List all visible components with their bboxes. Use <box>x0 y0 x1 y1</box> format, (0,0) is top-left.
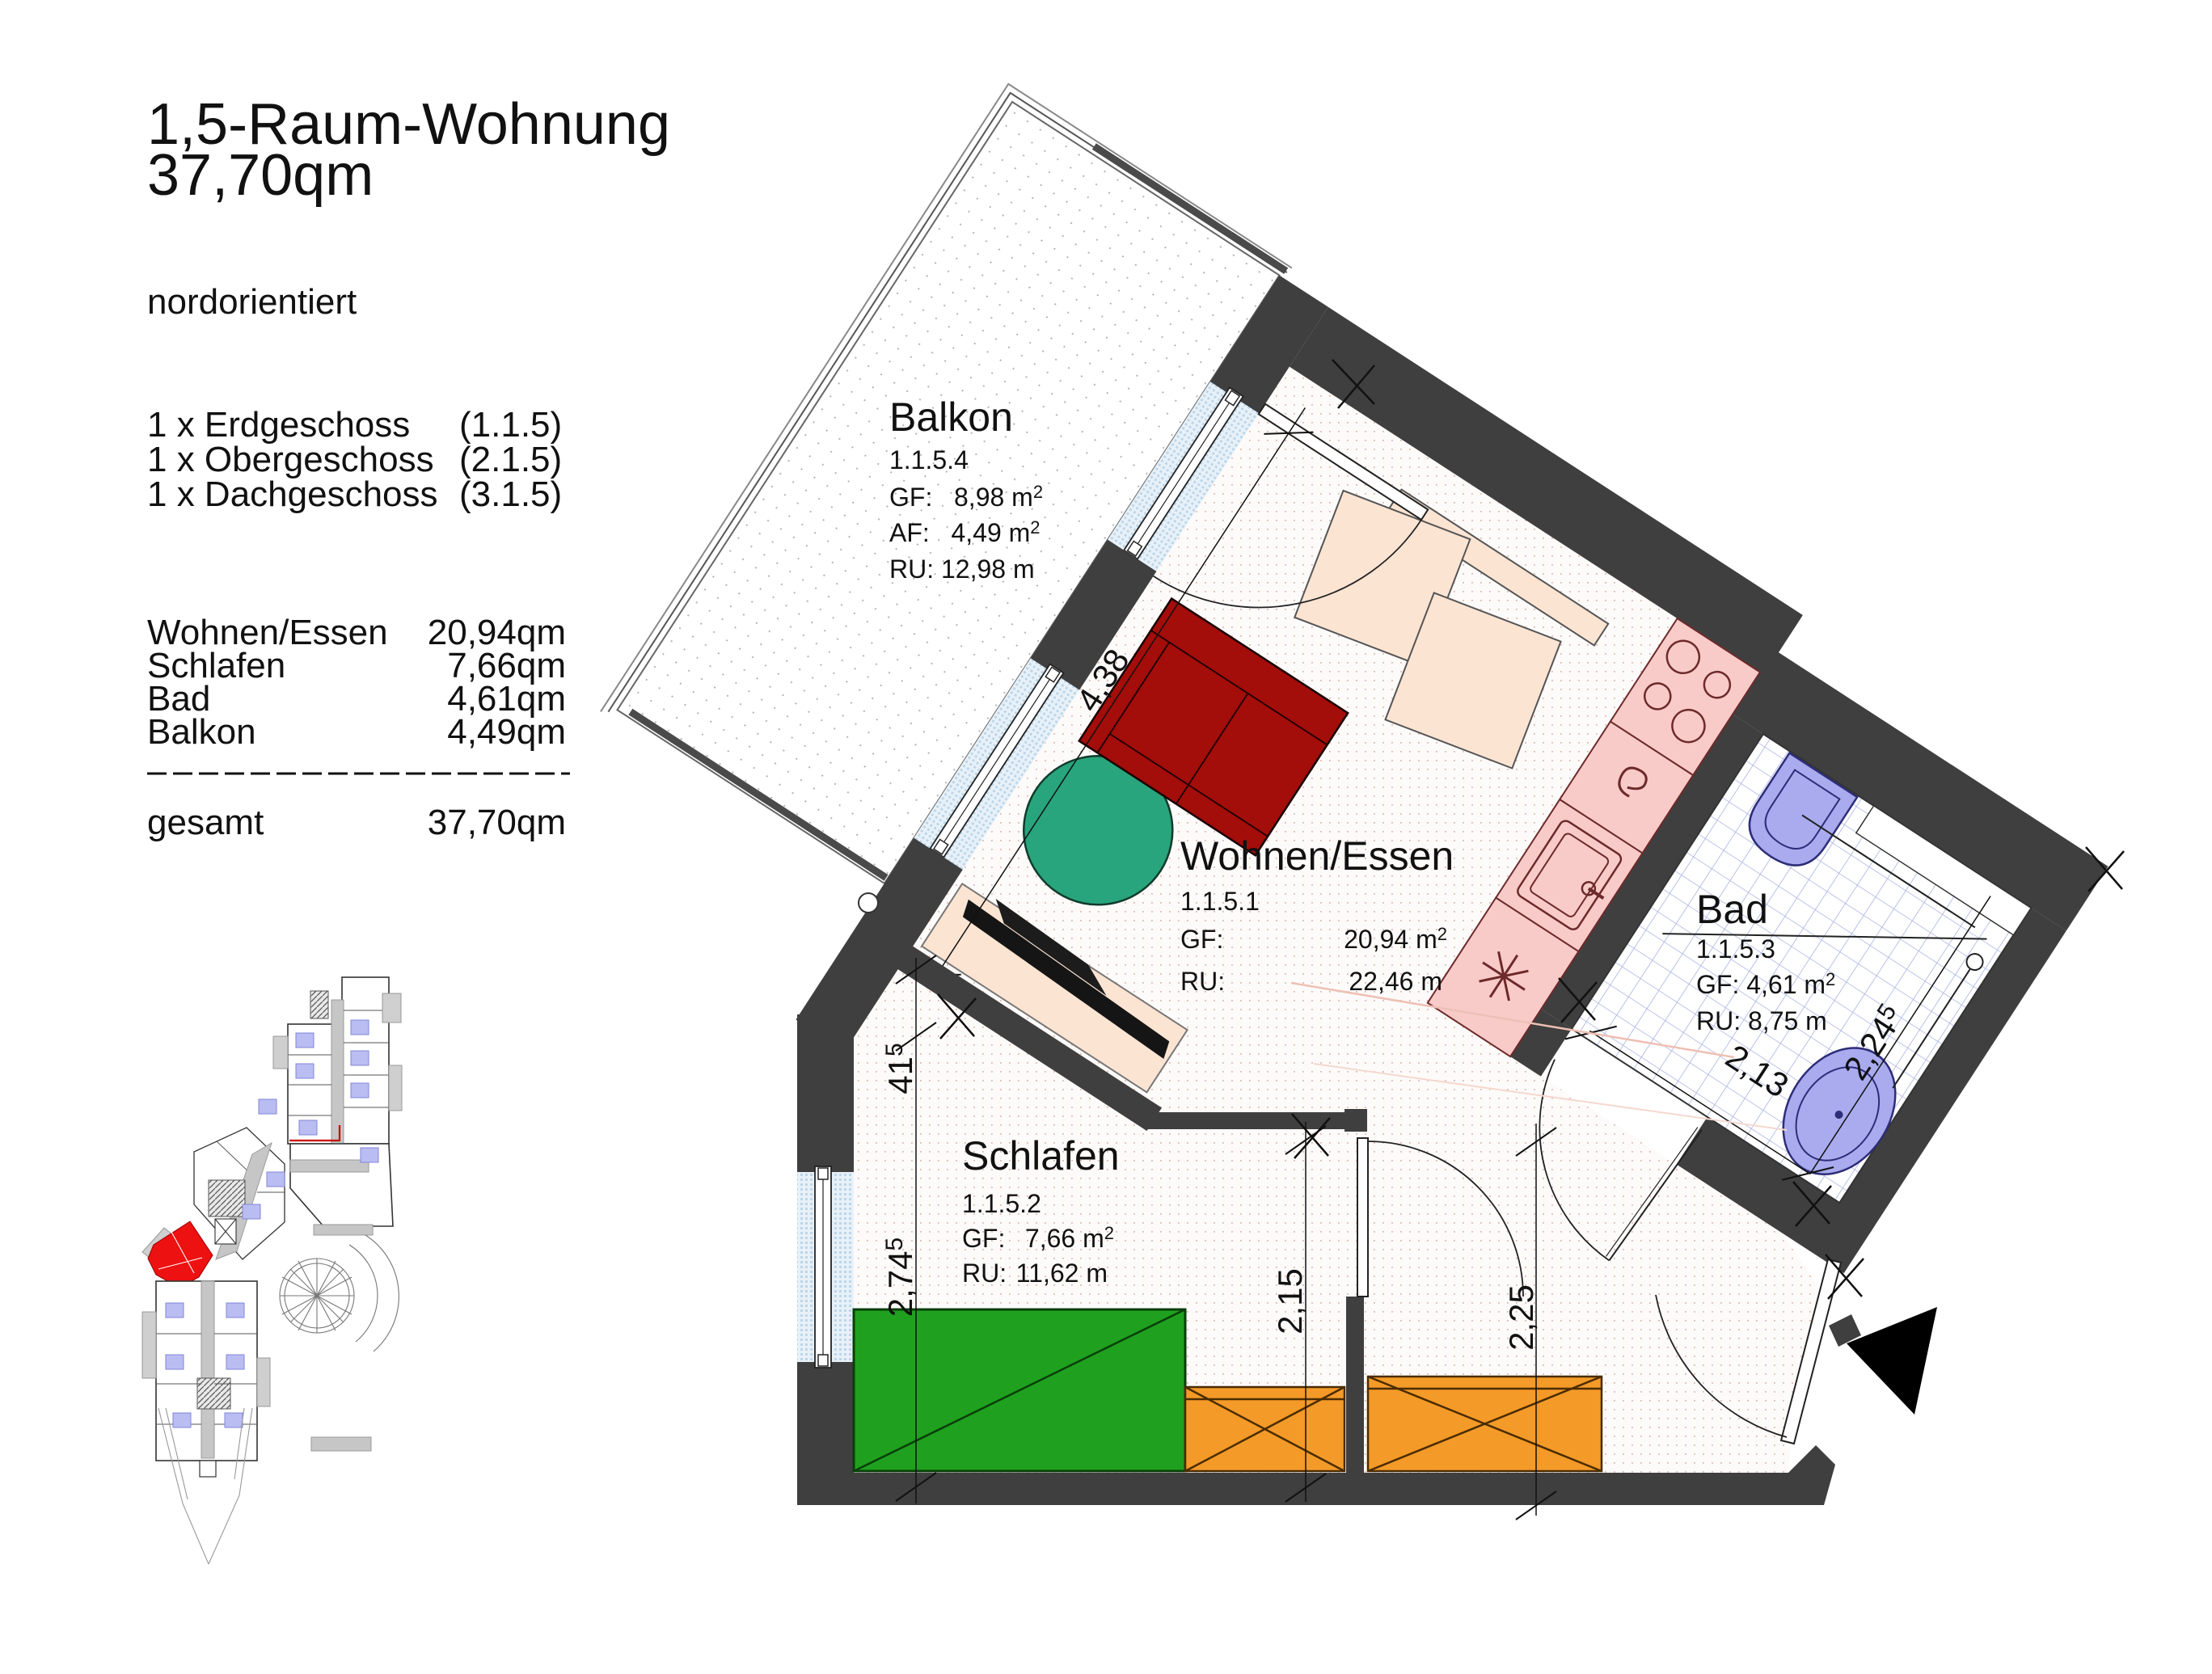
svg-text:gesamt: gesamt <box>147 803 264 842</box>
svg-text:2,15: 2,15 <box>1271 1268 1309 1335</box>
svg-text:AF: 4,49 m2: AF: 4,49 m2 <box>889 517 1041 547</box>
svg-text:20,94 m2: 20,94 m2 <box>1344 924 1447 954</box>
svg-text:7,66 m2: 7,66 m2 <box>1025 1223 1114 1253</box>
svg-text:Balkon: Balkon <box>147 712 256 752</box>
svg-text:nordorientiert: nordorientiert <box>147 282 357 322</box>
svg-text:4,49qm: 4,49qm <box>447 712 566 752</box>
svg-text:GF:: GF: <box>962 1224 1005 1253</box>
svg-text:2,25: 2,25 <box>1502 1284 1540 1351</box>
svg-text:11,62 m: 11,62 m <box>1016 1259 1108 1288</box>
svg-text:1 x Erdgeschoss: 1 x Erdgeschoss <box>147 405 410 445</box>
svg-text:1.1.5.1: 1.1.5.1 <box>1180 887 1260 916</box>
svg-text:1.1.5.3: 1.1.5.3 <box>1696 934 1775 963</box>
svg-text:37,70qm: 37,70qm <box>147 143 374 208</box>
svg-text:RU: 8,75 m: RU: 8,75 m <box>1696 1006 1827 1035</box>
svg-text:RU:: RU: <box>962 1259 1007 1288</box>
svg-text:1.1.5.2: 1.1.5.2 <box>962 1189 1041 1218</box>
svg-text:1 x Obergeschoss: 1 x Obergeschoss <box>147 440 434 479</box>
svg-text:(2.1.5): (2.1.5) <box>459 440 562 479</box>
svg-text:Wohnen/Essen: Wohnen/Essen <box>1180 833 1454 879</box>
svg-text:22,46 m: 22,46 m <box>1349 967 1442 996</box>
svg-text:GF: 4,61 m2: GF: 4,61 m2 <box>1696 969 1835 999</box>
svg-text:(1.1.5): (1.1.5) <box>459 405 562 445</box>
svg-text:Schlafen: Schlafen <box>962 1133 1120 1179</box>
svg-text:Bad: Bad <box>1696 887 1768 932</box>
svg-text:GF: 8,98 m2: GF: 8,98 m2 <box>889 482 1043 512</box>
svg-text:(3.1.5): (3.1.5) <box>459 474 562 514</box>
svg-text:RU: 12,98 m: RU: 12,98 m <box>889 554 1035 584</box>
svg-text:1.1.5.4: 1.1.5.4 <box>889 445 969 474</box>
svg-text:RU:: RU: <box>1180 967 1225 996</box>
svg-text:Balkon: Balkon <box>889 394 1013 440</box>
svg-text:1 x Dachgeschoss: 1 x Dachgeschoss <box>147 474 438 514</box>
svg-text:GF:: GF: <box>1180 925 1223 954</box>
svg-text:37,70qm: 37,70qm <box>428 803 566 842</box>
